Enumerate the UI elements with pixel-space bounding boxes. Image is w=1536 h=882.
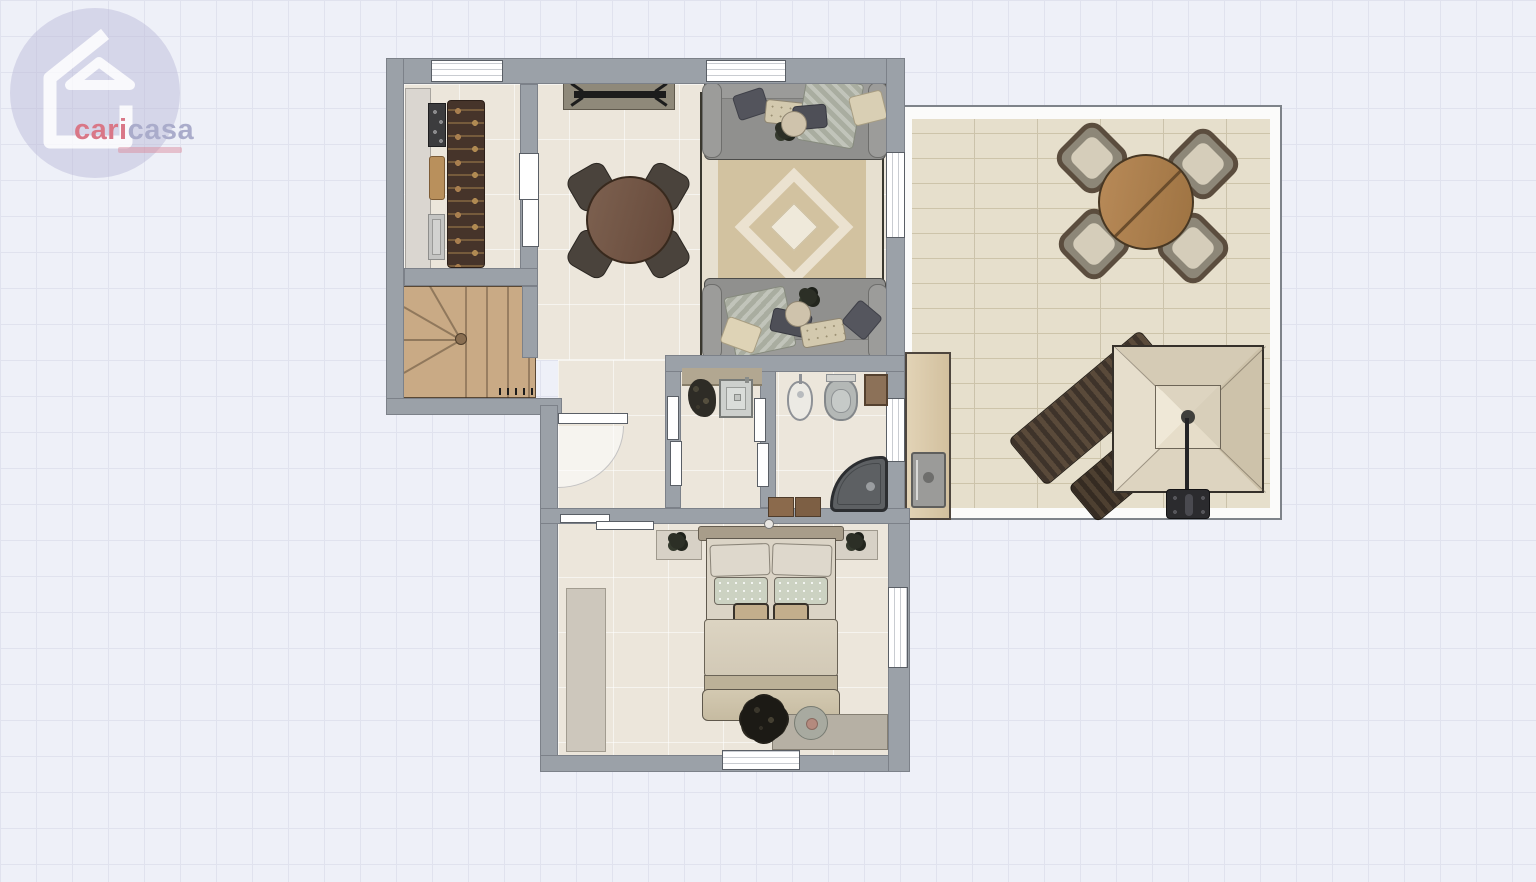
- side-table[interactable]: [781, 111, 807, 137]
- bath-mat[interactable]: [768, 497, 822, 517]
- terrace-sliding-door[interactable]: [886, 152, 905, 238]
- toilet-tank: [826, 374, 856, 382]
- laundry-door-right[interactable]: [757, 443, 769, 487]
- utensil-runner-rug[interactable]: [447, 100, 485, 268]
- cutting-board[interactable]: [429, 156, 445, 200]
- logo-text-casa: casa: [128, 114, 195, 146]
- sofa[interactable]: [704, 278, 886, 362]
- living-window[interactable]: [706, 60, 786, 82]
- wardrobe[interactable]: [566, 588, 606, 752]
- laundry-door-right[interactable]: [754, 398, 766, 442]
- bedroom-bottom-window[interactable]: [722, 750, 800, 770]
- sofa[interactable]: [704, 76, 886, 160]
- wall-kitchen-bottom: [404, 268, 538, 286]
- outdoor-sink[interactable]: [911, 452, 946, 508]
- double-bed[interactable]: [706, 538, 836, 694]
- patterned-pillow: [774, 577, 828, 605]
- bathroom-window[interactable]: [886, 398, 905, 462]
- logo-tagline: [118, 147, 182, 153]
- winder-stairs[interactable]: [402, 286, 536, 398]
- entry-door[interactable]: [558, 413, 628, 424]
- bedroom-right-window[interactable]: [888, 587, 908, 668]
- outdoor-dining-table[interactable]: [1098, 154, 1194, 250]
- side-table[interactable]: [785, 301, 811, 327]
- cooktop[interactable]: [428, 103, 446, 147]
- bedroom-sliding-door[interactable]: [596, 521, 654, 530]
- logo-wordmark: caricasa: [74, 114, 194, 147]
- bedroom-plant[interactable]: [741, 696, 787, 742]
- stair-newel-post: [455, 333, 467, 345]
- laundry-door-left[interactable]: [667, 396, 679, 440]
- toilet[interactable]: [824, 379, 858, 421]
- kitchen-pocket-door[interactable]: [522, 199, 539, 247]
- bed-pillow: [709, 543, 770, 577]
- floor-plan-canvas: caricasa: [0, 0, 1536, 882]
- wall-stairs-right: [522, 286, 538, 358]
- wall-left-lower: [540, 405, 558, 772]
- kitchen-window[interactable]: [431, 60, 503, 82]
- shower-drain: [866, 482, 875, 491]
- bath-cabinet[interactable]: [864, 374, 888, 406]
- bidet[interactable]: [787, 381, 813, 421]
- wall-kitchen-block-bottom: [386, 398, 562, 415]
- round-dining-table[interactable]: [586, 176, 674, 264]
- steel-sink[interactable]: [719, 379, 753, 418]
- round-tray[interactable]: [794, 706, 828, 740]
- dresser[interactable]: [772, 714, 888, 750]
- laundry-door-left[interactable]: [670, 441, 682, 486]
- umbrella-base[interactable]: [1166, 489, 1210, 519]
- brand-watermark: caricasa: [0, 0, 220, 190]
- patterned-pillow: [714, 577, 768, 605]
- nightstand-plant: [848, 534, 863, 549]
- umbrella-pole: [1185, 418, 1189, 498]
- logo-text-cari: cari: [74, 114, 128, 146]
- bed-pillow: [771, 543, 832, 577]
- duvet: [704, 619, 838, 677]
- headboard-knob: [764, 519, 774, 529]
- console-bench[interactable]: [563, 80, 675, 110]
- wall-left: [386, 58, 404, 415]
- nightstand-plant: [670, 534, 685, 549]
- kitchen-sink[interactable]: [428, 214, 445, 260]
- kitchen-pocket-door[interactable]: [519, 153, 539, 200]
